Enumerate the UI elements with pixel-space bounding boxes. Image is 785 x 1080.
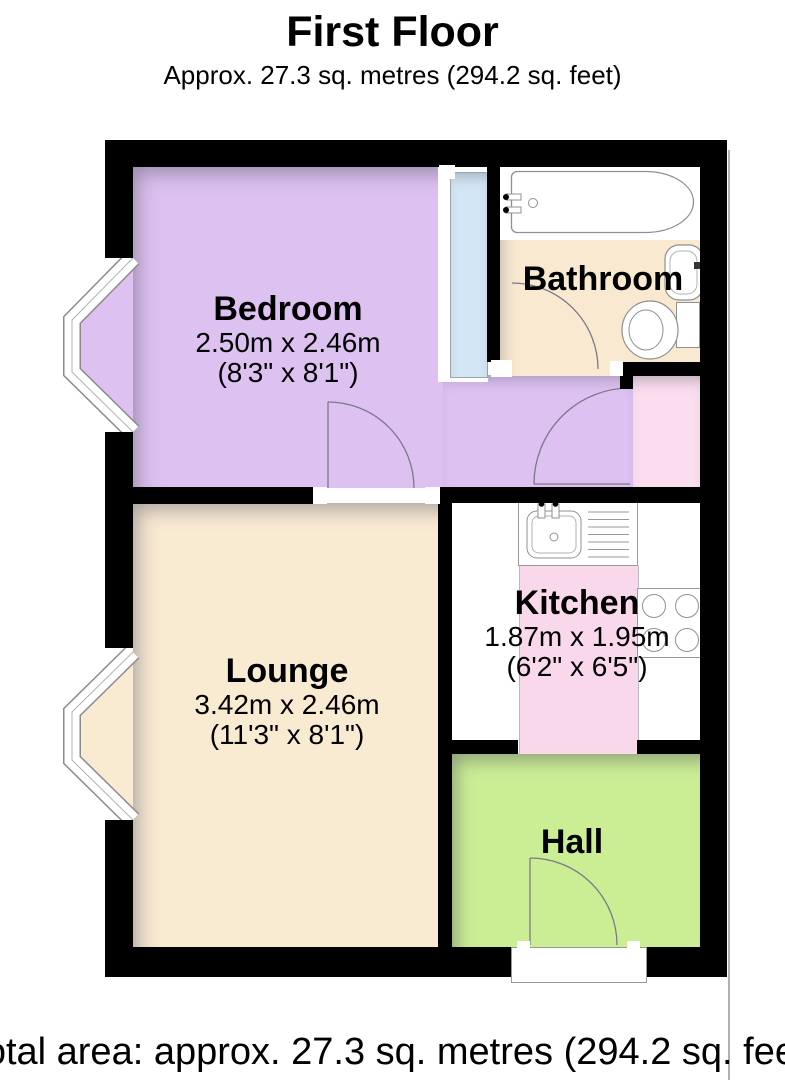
page-title: First Floor xyxy=(0,8,785,57)
total-area-caption: Total area: approx. 27.3 sq. metres (294… xyxy=(0,1031,785,1074)
lounge-bay-window-icon xyxy=(72,652,133,820)
wall-bathroom-bottom xyxy=(623,362,700,376)
bedroom-bay-window-icon xyxy=(72,258,133,432)
hall-name: Hall xyxy=(472,824,672,861)
wall-bathroom-door-stub xyxy=(620,376,633,389)
lounge-dim-metric: 3.42m x 2.46m xyxy=(152,690,422,720)
floorplan-page: First Floor Approx. 27.3 sq. metres (294… xyxy=(0,0,785,1080)
bedroom-dim-imperial: (8'3" x 8'1") xyxy=(153,358,423,388)
wall-left-lower xyxy=(105,820,133,947)
lounge-door-jamb xyxy=(313,487,327,504)
wall-bottom-left xyxy=(105,947,517,977)
bathroom-door-jamb xyxy=(610,361,623,376)
lounge-name: Lounge xyxy=(152,653,422,690)
bathroom-door-jamb xyxy=(491,360,512,377)
kitchen-dim-metric: 1.87m x 1.95m xyxy=(447,622,707,652)
lounge-label: Lounge 3.42m x 2.46m (11'3" x 8'1") xyxy=(152,653,422,750)
corridor-floor xyxy=(443,375,633,488)
wall-bottom-right xyxy=(640,947,727,977)
wall-kitchen-top xyxy=(438,487,700,503)
wall-top xyxy=(105,140,727,167)
wall-kitchen-bottom-left xyxy=(452,740,518,754)
bedroom-name: Bedroom xyxy=(153,291,423,328)
hall-door-jamb xyxy=(627,941,640,957)
bathroom-name: Bathroom xyxy=(493,261,713,298)
bathroom-label: Bathroom xyxy=(493,261,713,298)
wall-corridor-lounge xyxy=(133,487,313,504)
lounge-bay-floor xyxy=(72,652,133,820)
wall-left-middle xyxy=(105,432,133,648)
glazed-partition-window xyxy=(450,172,488,378)
bedroom-dim-metric: 2.50m x 2.46m xyxy=(153,328,423,358)
kitchen-label: Kitchen 1.87m x 1.95m (6'2" x 6'5") xyxy=(447,585,707,682)
lounge-door-jamb xyxy=(425,487,440,504)
kitchen-name: Kitchen xyxy=(447,585,707,622)
window-frame-jamb xyxy=(439,165,455,179)
wall-lounge-kitchen xyxy=(438,487,452,947)
kitchen-dim-imperial: (6'2" x 6'5") xyxy=(447,652,707,682)
pink-strip-floor xyxy=(633,376,700,488)
page-edge-line xyxy=(728,150,730,1080)
bathtub-platform xyxy=(500,167,700,240)
hall-label: Hall xyxy=(472,824,672,861)
bedroom-bay-floor xyxy=(72,258,133,432)
lounge-dim-imperial: (11'3" x 8'1") xyxy=(152,720,422,750)
wall-left-upper xyxy=(105,167,133,258)
bedroom-label: Bedroom 2.50m x 2.46m (8'3" x 8'1") xyxy=(153,291,423,388)
wall-kitchen-bottom-right xyxy=(637,740,700,754)
page-subtitle: Approx. 27.3 sq. metres (294.2 sq. feet) xyxy=(0,60,785,91)
hall-door-jamb xyxy=(517,941,530,957)
